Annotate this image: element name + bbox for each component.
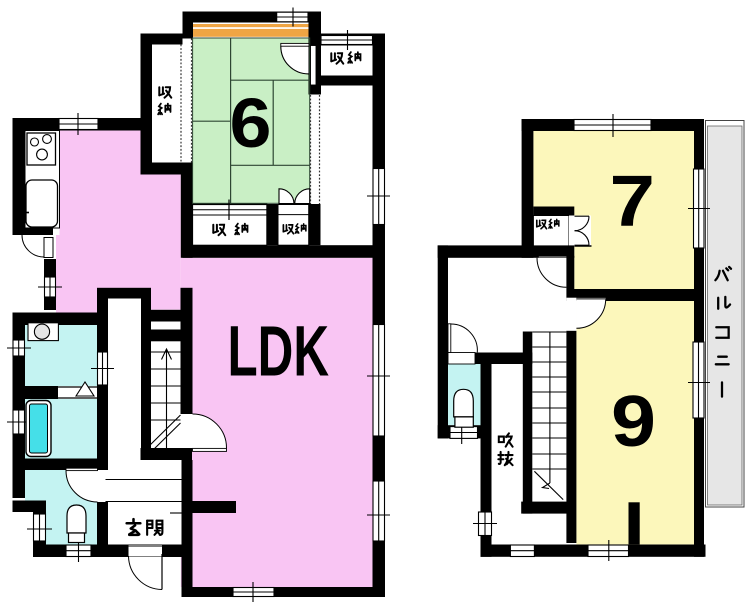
svg-text:7: 7 bbox=[610, 162, 656, 242]
svg-text:6: 6 bbox=[230, 84, 272, 162]
svg-text:LDK: LDK bbox=[228, 313, 330, 392]
svg-text:9: 9 bbox=[611, 382, 656, 462]
